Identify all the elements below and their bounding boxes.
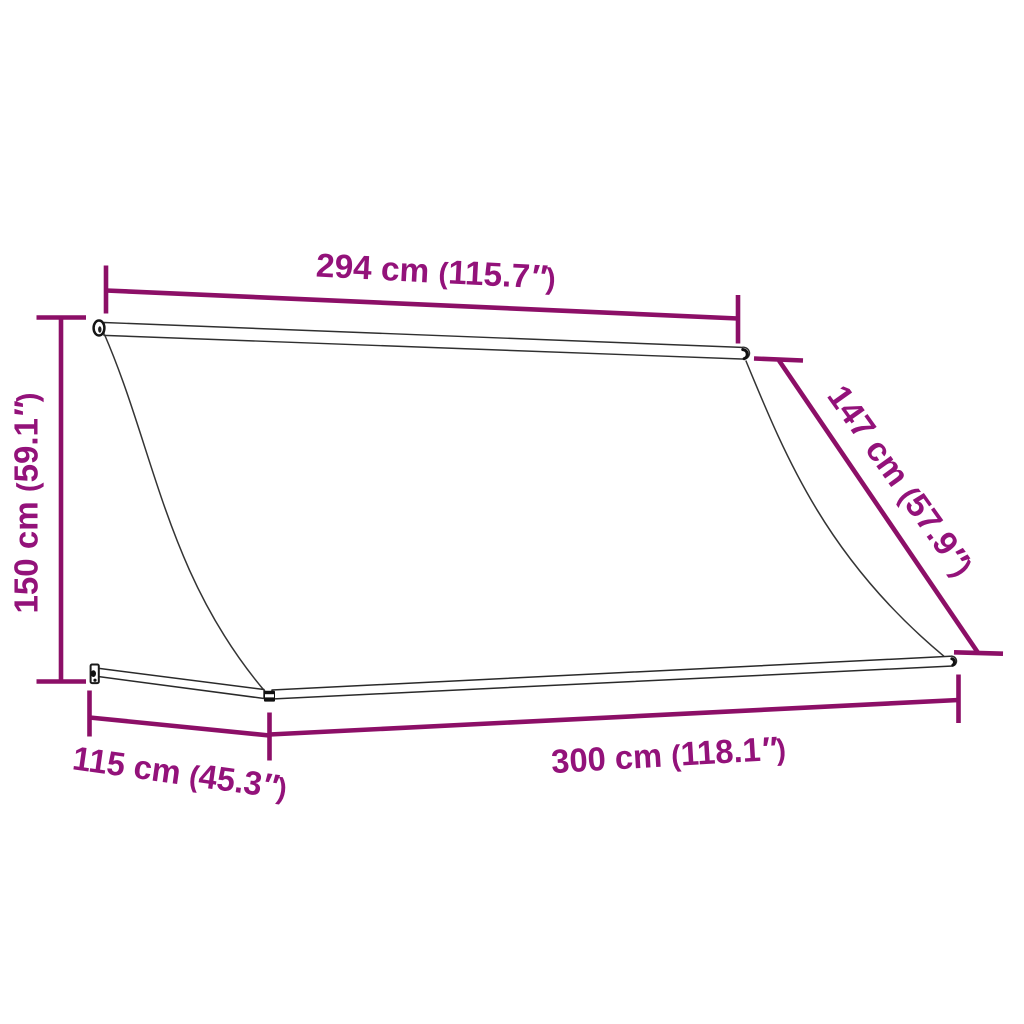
svg-text:294 cm (115.7″): 294 cm (115.7″) [315, 247, 557, 297]
svg-text:147 cm (57.9″): 147 cm (57.9″) [820, 379, 981, 584]
svg-text:115 cm (45.3″): 115 cm (45.3″) [70, 740, 289, 807]
svg-text:300 cm (118.1″): 300 cm (118.1″) [550, 730, 787, 781]
svg-text:150 cm (59.1″): 150 cm (59.1″) [9, 393, 46, 614]
